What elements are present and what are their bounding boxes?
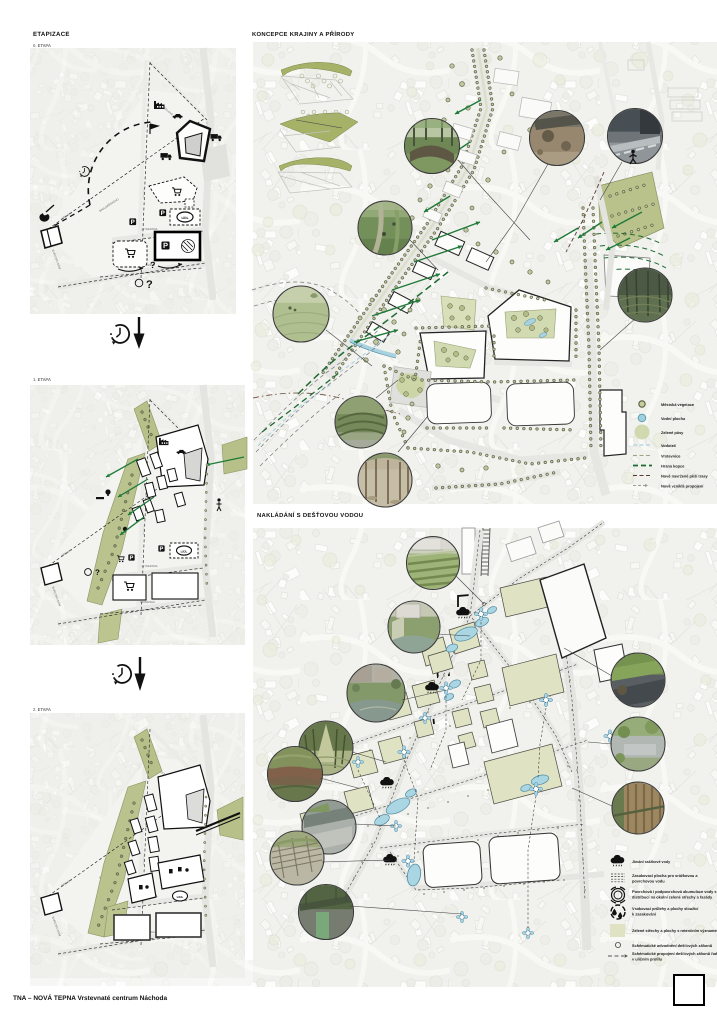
svg-text:Povrchová i podpovrchová akumu: Povrchová i podpovrchová akumulace vody …	[632, 889, 717, 894]
svg-text:Nově vzniklá propojení: Nově vzniklá propojení	[661, 484, 704, 489]
svg-text:Jímání srážkové vody: Jímání srážkové vody	[632, 860, 671, 864]
svg-text:1. ETAPA: 1. ETAPA	[33, 377, 51, 382]
svg-text:v uličním profilu: v uličním profilu	[632, 957, 663, 962]
svg-text:Vodní plocha: Vodní plocha	[661, 416, 686, 421]
svg-text:0. ETAPA: 0. ETAPA	[33, 43, 51, 48]
svg-text:Schématické propojení dešťovýc: Schématické propojení dešťových záhonů ř…	[632, 951, 717, 956]
svg-text:Vsakovací průlehy a plochy slo: Vsakovací průlehy a plochy sloužící	[632, 906, 699, 911]
svg-text:Nově navržené pěší trasy: Nově navržené pěší trasy	[661, 474, 709, 479]
svg-text:LIDL: LIDL	[181, 550, 188, 554]
svg-text:LIDL: LIDL	[177, 895, 184, 899]
svg-text:?: ?	[146, 279, 153, 291]
svg-text:Zelené pásy: Zelené pásy	[661, 430, 684, 435]
svg-text:povrchovou vodu: povrchovou vodu	[632, 879, 665, 884]
svg-text:Vodoteč: Vodoteč	[661, 443, 677, 448]
svg-text:Schématické odvodnění dešťovýc: Schématické odvodnění dešťových záhonů	[632, 943, 713, 948]
svg-text:NAKLÁDÁNÍ S DEŠŤOVOU VODOU: NAKLÁDÁNÍ S DEŠŤOVOU VODOU	[257, 511, 363, 519]
svg-text:Zasakovací plocha pro srážkovo: Zasakovací plocha pro srážkovou a	[632, 873, 698, 878]
svg-text:?: ?	[150, 260, 156, 270]
svg-text:LIDL: LIDL	[181, 216, 188, 220]
svg-text:Městská vegetace: Městská vegetace	[661, 402, 695, 407]
svg-text:ETAPIZACE: ETAPIZACE	[33, 31, 70, 38]
svg-text:KONCEPCE KRAJINY A PŘÍRODY: KONCEPCE KRAJINY A PŘÍRODY	[252, 30, 355, 38]
svg-text:TEPENSKÁ: TEPENSKÁ	[140, 600, 155, 604]
svg-text:distribucí na okolní zelené st: distribucí na okolní zelené střechy a fa…	[632, 895, 713, 900]
svg-text:2. ETAPA: 2. ETAPA	[33, 707, 51, 712]
svg-text:?: ?	[95, 568, 100, 577]
svg-text:Zelené střechy a plochy s rete: Zelené střechy a plochy s retenčním význ…	[632, 928, 717, 933]
svg-text:Vrstevnice: Vrstevnice	[661, 454, 681, 459]
svg-text:Hrana kopce: Hrana kopce	[661, 464, 685, 469]
svg-text:TNA – NOVÁ TEPNA Vrstevnaté ce: TNA – NOVÁ TEPNA Vrstevnaté centrum Nách…	[13, 994, 167, 1002]
svg-text:k zasakování: k zasakování	[632, 912, 657, 917]
